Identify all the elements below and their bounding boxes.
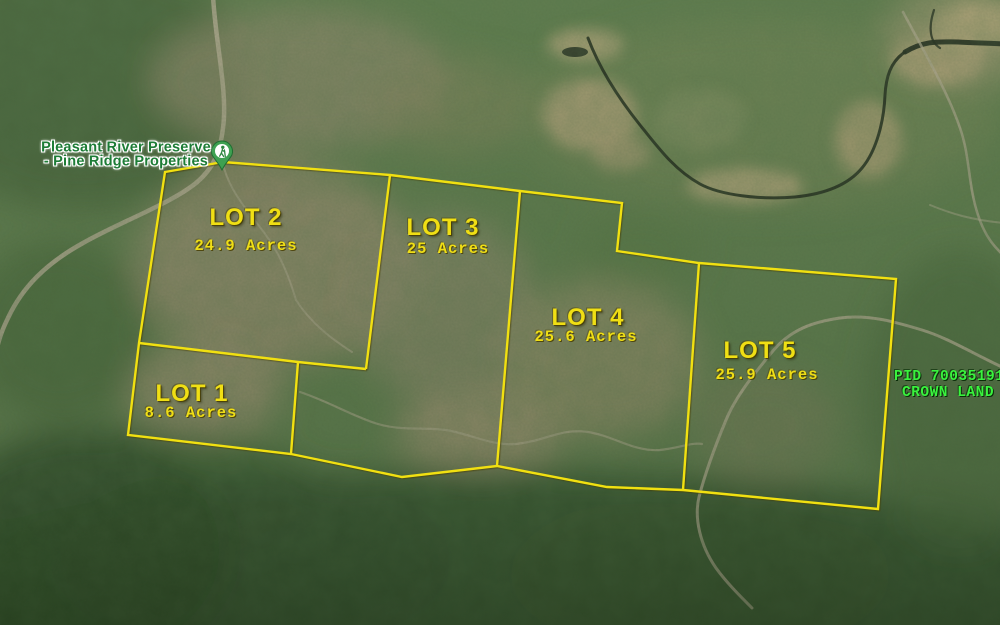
lot-1-acres: 8.6 Acres	[145, 404, 238, 422]
lot-4-acres: 25.6 Acres	[534, 328, 637, 346]
satellite-imagery	[0, 0, 1000, 625]
lot-2-acres: 24.9 Acres	[194, 237, 297, 255]
place-marker-label: Pleasant River Preserve - Pine Ridge Pro…	[41, 142, 211, 169]
shading-overlay	[0, 0, 1000, 625]
lot-5-acres: 25.9 Acres	[715, 366, 818, 384]
lot-3-acres: 25 Acres	[407, 240, 489, 258]
crown-land-text: CROWN LAND	[902, 385, 994, 401]
map-canvas: Pleasant River Preserve - Pine Ridge Pro…	[0, 0, 1000, 625]
lot-5-name: LOT 5	[723, 337, 796, 365]
lot-2-name: LOT 2	[209, 204, 282, 232]
crown-land-pid: PID 70035191	[894, 369, 1000, 385]
place-marker-label-line2: - Pine Ridge Properties	[41, 155, 211, 169]
lot-3-name: LOT 3	[406, 214, 479, 242]
